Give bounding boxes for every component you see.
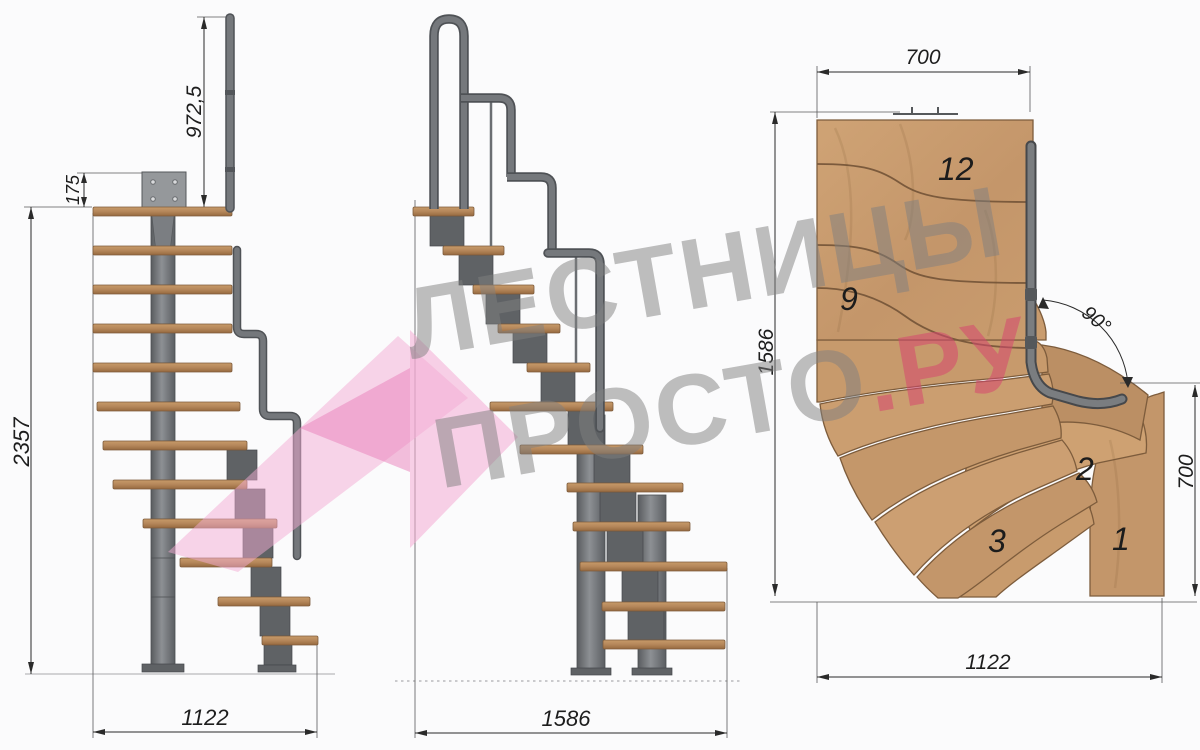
tread xyxy=(580,562,727,571)
dim-arrow-down xyxy=(28,662,34,674)
tread xyxy=(93,285,232,294)
dim-arrow-right xyxy=(715,730,727,736)
treads-a xyxy=(93,207,318,645)
dim-handrail-height: 972,5 xyxy=(183,17,207,207)
wall-bracket xyxy=(893,107,958,114)
dim-total-height: 2357 xyxy=(9,207,34,674)
dim-arrow-up xyxy=(1192,385,1198,397)
tread xyxy=(527,363,590,372)
tread xyxy=(93,207,232,216)
module xyxy=(430,216,464,246)
tread xyxy=(262,636,318,645)
tread xyxy=(218,597,310,606)
dim-width-a: 1122 xyxy=(93,705,317,735)
dim-label-total-height: 2357 xyxy=(9,417,34,468)
dim-right-depth: 700 xyxy=(1175,385,1198,596)
dim-arrow-right xyxy=(1150,674,1162,680)
dim-label-width-b: 1586 xyxy=(542,706,592,731)
dim-arrow-up xyxy=(201,17,207,29)
tread xyxy=(93,246,232,255)
column-base-flange xyxy=(142,664,184,672)
dim-width-b: 1586 xyxy=(415,706,727,736)
step-label-1: 1 xyxy=(1112,521,1130,557)
drawing-canvas: 2357 175 972,5 1122 xyxy=(0,0,1200,750)
dim-arrow-left xyxy=(817,69,829,75)
dim-label-top-width: 700 xyxy=(905,46,940,69)
dim-arrow-down xyxy=(1192,584,1198,596)
center-column xyxy=(151,210,175,666)
dim-arrow-up xyxy=(772,112,778,124)
base-flange xyxy=(258,665,296,672)
module xyxy=(264,645,292,665)
rail-seg-outline xyxy=(507,177,552,253)
module xyxy=(260,606,290,636)
tread xyxy=(103,441,247,450)
rail-sleeve xyxy=(1025,288,1037,301)
bolt-hole xyxy=(151,197,156,202)
dim-label-turn-angle: 90° xyxy=(1077,302,1114,338)
tread xyxy=(603,640,725,649)
tread xyxy=(97,402,240,411)
module xyxy=(600,492,636,522)
dim-arrow-down xyxy=(772,584,778,596)
dim-plate-offset: 175 xyxy=(63,173,87,207)
column-base-flange xyxy=(571,668,611,675)
column-base-flange xyxy=(632,668,672,675)
mounting-plate xyxy=(142,172,186,208)
bolt-hole xyxy=(173,197,178,202)
dim-arrow-left xyxy=(415,730,427,736)
dim-top-width: 700 xyxy=(817,46,1030,75)
module xyxy=(628,611,664,640)
side-view-a: 2357 175 972,5 1122 xyxy=(9,17,335,738)
dim-arrow-down xyxy=(201,195,207,207)
dim-arrow-right xyxy=(1018,69,1030,75)
bolt-hole xyxy=(151,180,156,185)
dim-label-width-a: 1122 xyxy=(181,705,228,730)
dim-arrow-left xyxy=(93,729,105,735)
step-label-3: 3 xyxy=(988,523,1006,559)
post-joint xyxy=(225,167,235,172)
dim-arrow-up xyxy=(28,207,34,219)
dim-label-bottom-width: 1122 xyxy=(965,651,1010,674)
module xyxy=(251,567,281,597)
dim-label-plate-offset: 175 xyxy=(63,174,83,205)
arc-arrow-start xyxy=(1038,297,1049,309)
dim-arrow-left xyxy=(817,674,829,680)
dim-bottom-width: 1122 xyxy=(817,651,1162,680)
rail-seg-2 xyxy=(507,177,552,253)
dim-arrow-right xyxy=(305,729,317,735)
module xyxy=(622,571,658,602)
tread xyxy=(602,602,725,611)
post-joint xyxy=(225,90,235,95)
tread xyxy=(113,480,247,489)
dim-label-right-depth: 700 xyxy=(1175,454,1198,489)
rail-loop-outline xyxy=(434,19,464,209)
staircase-drawing: 2357 175 972,5 1122 xyxy=(0,0,1200,750)
dim-label-handrail-height: 972,5 xyxy=(183,85,206,138)
tread xyxy=(93,324,232,333)
tread xyxy=(573,522,690,531)
module xyxy=(607,531,643,562)
step-label-2: 2 xyxy=(1075,451,1094,487)
bolt-hole xyxy=(173,180,178,185)
tread xyxy=(93,363,232,372)
